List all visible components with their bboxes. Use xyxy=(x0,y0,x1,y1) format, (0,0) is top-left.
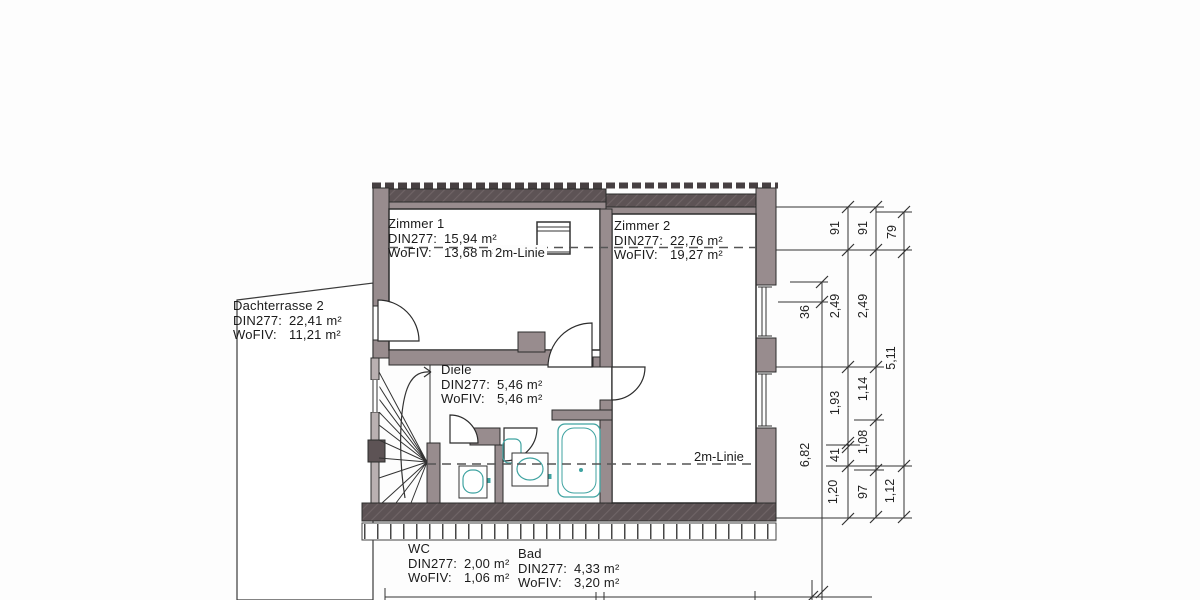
wofiv-value: 1,06 m² xyxy=(464,571,509,586)
wofiv-label: WoFIV: xyxy=(408,571,464,586)
dimension-chains xyxy=(776,201,912,600)
2m-linie-label-top: 2m-Linie xyxy=(493,245,547,260)
dim-1-14: 1,14 xyxy=(856,367,872,411)
din-label: DIN277: xyxy=(518,562,574,577)
wofiv-label: WoFIV: xyxy=(441,392,497,407)
dim-2-49-a: 2,49 xyxy=(828,284,844,328)
room-label-dachterrasse2: Dachterrasse 2 DIN277:22,41 m² WoFIV:11,… xyxy=(233,299,342,343)
room-name: Zimmer 1 xyxy=(388,217,497,232)
din-value: 2,00 m² xyxy=(464,557,509,572)
wofiv-label: WoFIV: xyxy=(233,328,289,343)
staircase xyxy=(379,365,431,503)
din-value: 22,76 m² xyxy=(670,234,723,249)
dim-79: 79 xyxy=(885,210,901,254)
dim-36: 36 xyxy=(798,290,814,334)
din-value: 4,33 m² xyxy=(574,562,619,577)
dim-2-49-b: 2,49 xyxy=(856,284,872,328)
wofiv-value: 11,21 m² xyxy=(289,328,342,343)
dim-1-20: 1,20 xyxy=(826,470,842,514)
dim-5-11: 5,11 xyxy=(884,336,900,380)
room-name: Diele xyxy=(441,363,542,378)
din-label: DIN277: xyxy=(233,314,289,329)
dim-1-12: 1,12 xyxy=(883,469,899,513)
room-label-wc: WC DIN277:2,00 m² WoFIV:1,06 m² xyxy=(408,542,509,586)
wofiv-value: 13,68 m² xyxy=(444,246,497,261)
dim-91-a: 91 xyxy=(828,206,844,250)
din-label: DIN277: xyxy=(408,557,464,572)
din-value: 15,94 m² xyxy=(444,232,497,247)
wofiv-label: WoFIV: xyxy=(388,246,444,261)
2m-linie-label-bottom: 2m-Linie xyxy=(694,449,744,464)
dim-97: 97 xyxy=(856,470,872,514)
din-label: DIN277: xyxy=(441,378,497,393)
room-label-diele: Diele DIN277:5,46 m² WoFIV:5,46 m² xyxy=(441,363,542,407)
wofiv-value: 3,20 m² xyxy=(574,576,619,591)
floorplan-canvas xyxy=(0,0,1200,600)
floorplan-page: Zimmer 1 DIN277:15,94 m² WoFIV:13,68 m² … xyxy=(0,0,1200,600)
din-value: 5,46 m² xyxy=(497,378,542,393)
wofiv-value: 19,27 m² xyxy=(670,248,723,263)
room-name: Bad xyxy=(518,547,619,562)
room-name: WC xyxy=(408,542,509,557)
dim-91-b: 91 xyxy=(856,206,872,250)
din-label: DIN277: xyxy=(614,234,670,249)
room-label-zimmer1: Zimmer 1 DIN277:15,94 m² WoFIV:13,68 m² xyxy=(388,217,497,261)
wofiv-label: WoFIV: xyxy=(614,248,670,263)
dim-6-82: 6,82 xyxy=(798,433,814,477)
din-value: 22,41 m² xyxy=(289,314,342,329)
wofiv-label: WoFIV: xyxy=(518,576,574,591)
room-label-zimmer2: Zimmer 2 DIN277:22,76 m² WoFIV:19,27 m² xyxy=(614,219,723,263)
room-label-bad: Bad DIN277:4,33 m² WoFIV:3,20 m² xyxy=(518,547,619,591)
wofiv-value: 5,46 m² xyxy=(497,392,542,407)
din-label: DIN277: xyxy=(388,232,444,247)
room-name: Zimmer 2 xyxy=(614,219,723,234)
room-name: Dachterrasse 2 xyxy=(233,299,342,314)
dim-1-93: 1,93 xyxy=(828,381,844,425)
dim-1-08: 1,08 xyxy=(856,420,872,464)
